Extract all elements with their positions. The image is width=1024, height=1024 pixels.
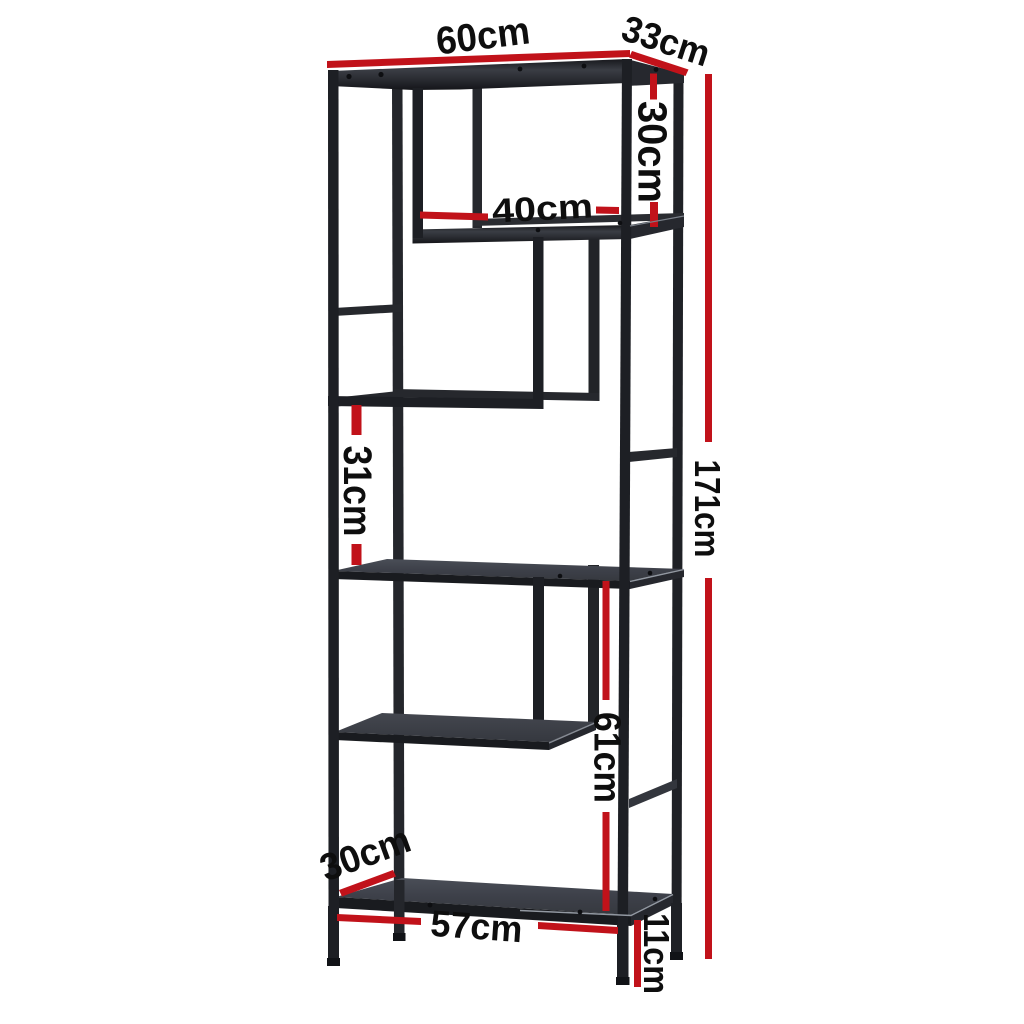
svg-text:61cm: 61cm	[586, 712, 628, 803]
svg-text:30cm: 30cm	[630, 101, 676, 203]
svg-text:171cm: 171cm	[687, 460, 728, 558]
svg-text:57cm: 57cm	[429, 903, 524, 950]
svg-text:31cm: 31cm	[335, 446, 379, 537]
svg-text:11cm: 11cm	[636, 913, 677, 994]
svg-text:40cm: 40cm	[491, 187, 594, 230]
